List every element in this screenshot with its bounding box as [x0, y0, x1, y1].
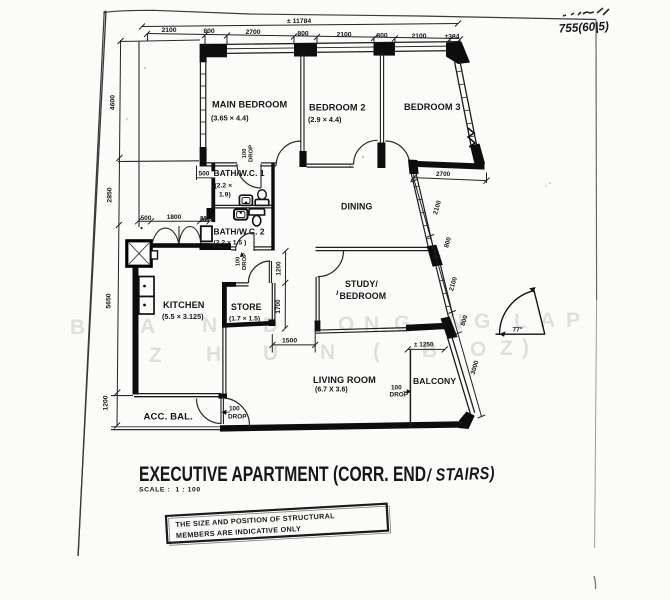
svg-text:O: O — [470, 338, 486, 361]
svg-text:A: A — [540, 309, 555, 332]
svg-text:300: 300 — [200, 218, 211, 224]
svg-text:500: 500 — [141, 215, 152, 222]
svg-text:(1.7 × 1.5): (1.7 × 1.5) — [229, 316, 260, 323]
svg-text:N: N — [202, 314, 217, 337]
svg-text:P: P — [566, 309, 580, 332]
svg-text:BEDROOM: BEDROOM — [340, 291, 387, 301]
svg-text:SCALE : 1 : 100: SCALE : 1 : 100 — [139, 487, 201, 494]
svg-text:MAIN BEDROOM: MAIN BEDROOM — [212, 100, 287, 110]
svg-text:BATH/W.C. 2: BATH/W.C. 2 — [214, 227, 265, 237]
svg-text:/ STAIRS): / STAIRS) — [426, 463, 495, 485]
svg-text:Z: Z — [149, 344, 162, 367]
svg-text:1500: 1500 — [282, 338, 297, 345]
svg-text:A: A — [140, 315, 155, 338]
svg-text:2700: 2700 — [245, 29, 260, 36]
svg-text:1200: 1200 — [103, 395, 110, 410]
svg-text:): ) — [522, 336, 529, 359]
svg-text:BALCONY: BALCONY — [413, 376, 456, 386]
svg-text:800: 800 — [203, 28, 215, 35]
svg-text:±384: ±384 — [444, 34, 459, 41]
svg-text:1200: 1200 — [276, 261, 283, 276]
svg-text:(6.7 X 3.6): (6.7 X 3.6) — [315, 387, 348, 394]
svg-text:DROP: DROP — [390, 392, 409, 399]
svg-text:1800: 1800 — [167, 214, 182, 221]
svg-text:(2.9 × 4.4): (2.9 × 4.4) — [308, 115, 342, 124]
svg-text:2100: 2100 — [336, 32, 351, 39]
svg-text:B: B — [70, 316, 85, 339]
svg-text:DROP: DROP — [249, 145, 255, 162]
svg-text:755(60|5): 755(60|5) — [558, 19, 609, 36]
svg-text:EXECUTIVE APARTMENT (CORR. END: EXECUTIVE APARTMENT (CORR. END — [139, 463, 426, 486]
svg-text:100: 100 — [391, 385, 402, 392]
svg-text:3000: 3000 — [470, 359, 481, 375]
svg-text:(: ( — [373, 340, 380, 363]
svg-text:2850: 2850 — [107, 187, 114, 202]
svg-text:± 11784: ± 11784 — [287, 18, 311, 25]
svg-text:800: 800 — [297, 31, 309, 38]
svg-text:4600: 4600 — [110, 95, 117, 110]
svg-text:DROP: DROP — [228, 414, 247, 421]
svg-text:N: N — [364, 313, 379, 336]
svg-text:U: U — [263, 342, 278, 365]
svg-text:(3.65 × 4.4): (3.65 × 4.4) — [211, 114, 249, 123]
svg-text:2100: 2100 — [161, 27, 176, 34]
svg-text:100: 100 — [229, 406, 240, 413]
svg-text:H: H — [206, 343, 221, 366]
svg-text:BEDROOM 3: BEDROOM 3 — [404, 102, 461, 112]
svg-text:(2.2 x 1.5 ): (2.2 x 1.5 ) — [214, 240, 247, 247]
svg-text:800: 800 — [376, 33, 388, 40]
svg-text:1700: 1700 — [275, 299, 282, 314]
svg-text:LIVING ROOM: LIVING ROOM — [313, 375, 376, 385]
svg-text:100: 100 — [242, 148, 248, 159]
svg-text:5650: 5650 — [106, 293, 113, 308]
svg-text:2700: 2700 — [436, 171, 451, 178]
svg-text:G: G — [394, 312, 410, 335]
svg-text:100: 100 — [236, 256, 242, 267]
svg-text:± 1250: ± 1250 — [414, 342, 434, 349]
svg-text:2100: 2100 — [411, 33, 426, 40]
svg-text:STORE: STORE — [231, 302, 262, 312]
svg-text:BEDROOM 2: BEDROOM 2 — [309, 103, 366, 113]
svg-text:2100: 2100 — [432, 199, 443, 215]
svg-text:500: 500 — [199, 171, 210, 178]
svg-text:2100: 2100 — [448, 276, 459, 292]
svg-text:ACC. BAL.: ACC. BAL. — [144, 412, 193, 423]
svg-text:BATH/W.C. 1: BATH/W.C. 1 — [214, 168, 265, 178]
svg-text:77°: 77° — [513, 326, 523, 334]
svg-text:(2.2 ×: (2.2 × — [215, 183, 233, 190]
svg-text:Z: Z — [500, 337, 513, 360]
svg-text:1.9): 1.9) — [219, 192, 231, 199]
svg-text:DINING: DINING — [341, 202, 372, 212]
svg-text:KITCHEN: KITCHEN — [163, 300, 205, 310]
svg-text:(5.5 × 3.125): (5.5 × 3.125) — [162, 312, 204, 321]
svg-text:N: N — [320, 341, 335, 364]
svg-text:800: 800 — [443, 236, 453, 249]
svg-text:G: G — [474, 310, 490, 333]
svg-text:STUDY/: STUDY/ — [345, 279, 378, 289]
svg-text:DROP: DROP — [242, 253, 248, 270]
